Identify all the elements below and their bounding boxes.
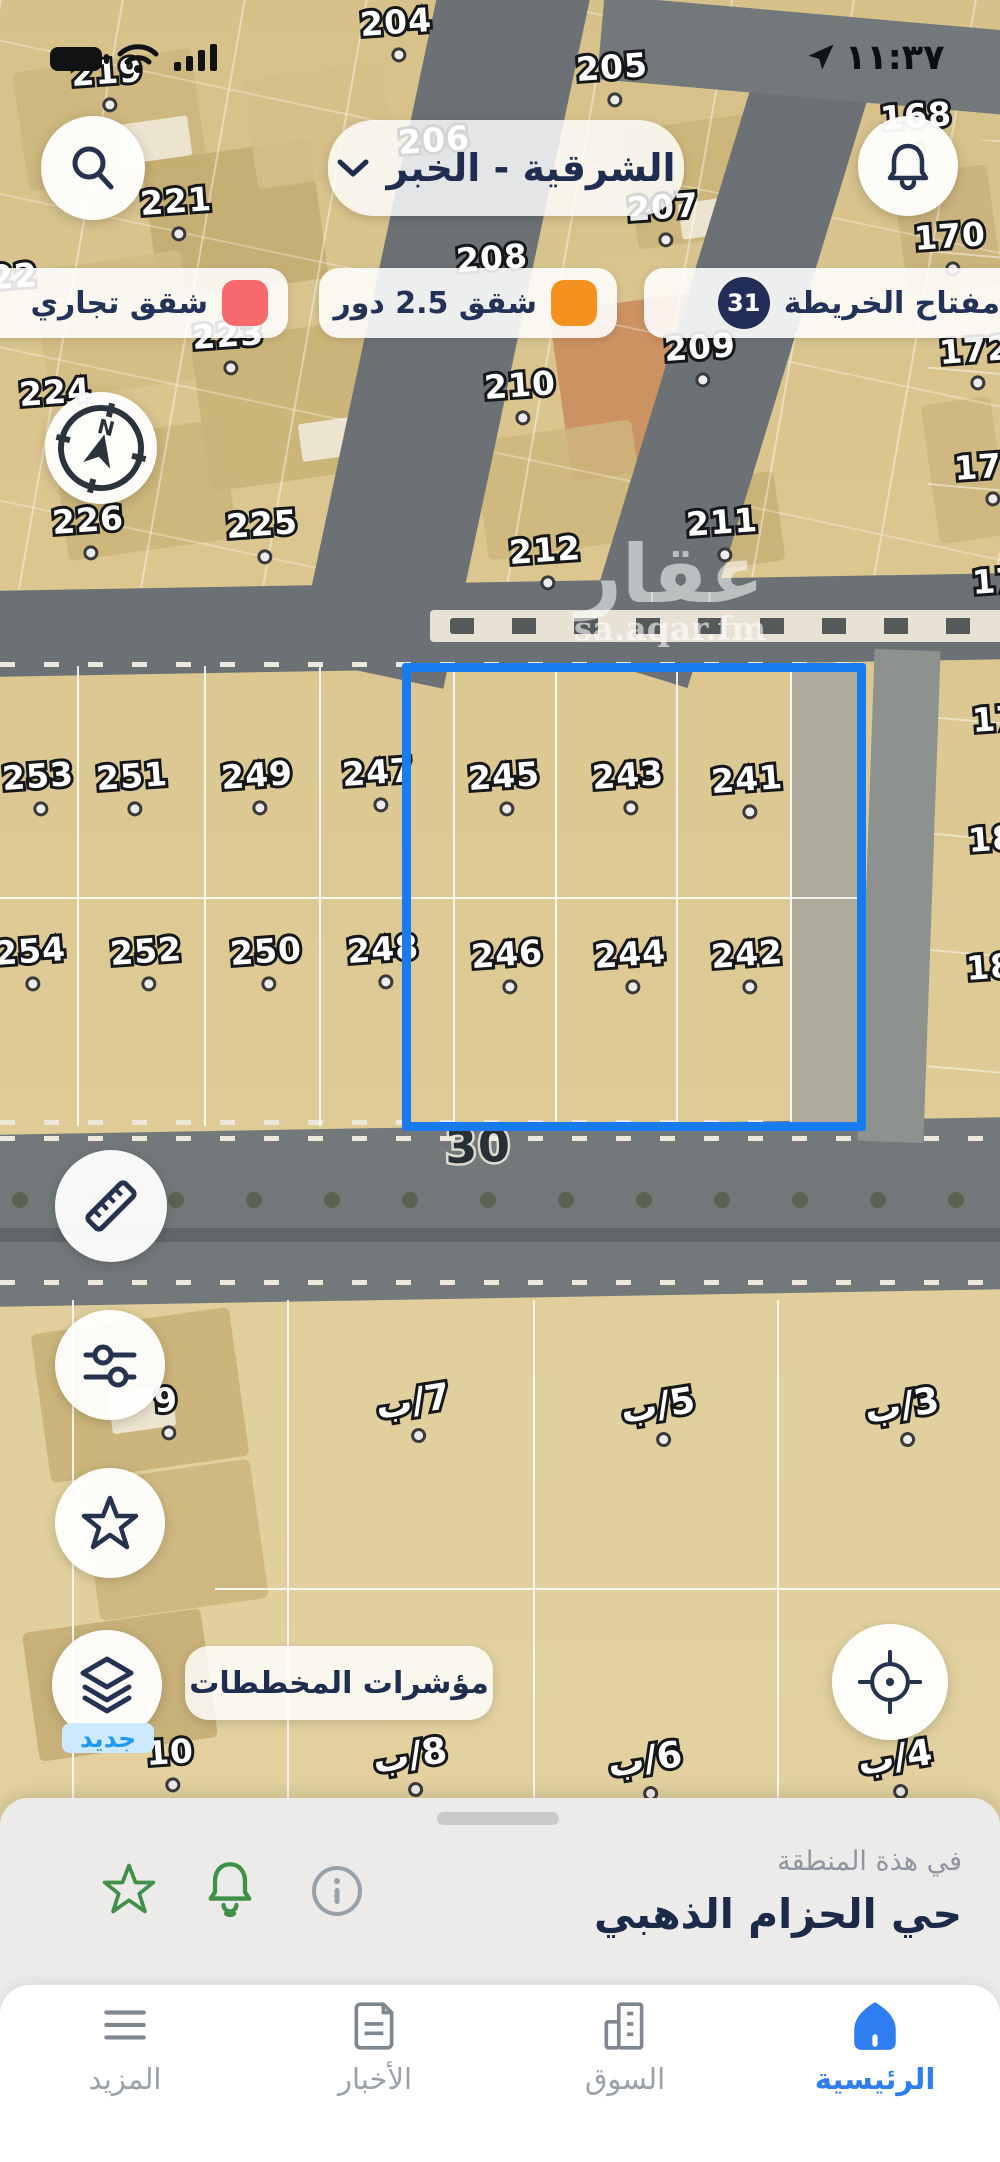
plot-label[interactable]: 5/ب [618,1380,698,1432]
plot-marker-dot [127,801,143,817]
favorite-area-button[interactable] [100,1860,158,1918]
notifications-button[interactable] [858,116,958,216]
legend-chip-floors[interactable]: شقق 2.5 دور [319,268,617,338]
plot-label[interactable]: 249 [220,753,294,797]
plot-marker-dot [161,1425,177,1441]
plot-label[interactable]: 211 [685,500,759,544]
plot-label[interactable]: 219 [70,50,144,94]
nav-item-news[interactable]: الأخبار [250,1999,500,2162]
plot-marker-dot [223,360,239,376]
plot-label[interactable]: 176 [971,558,1000,602]
news-icon [348,1999,402,2053]
plot-label[interactable]: 6/ب [605,1734,685,1786]
search-icon [67,142,119,194]
legend-chip-commercial[interactable]: شقق تجاري [0,268,288,338]
plot-marker-dot [717,547,733,563]
plot-marker-dot [410,1427,427,1444]
legend-label-commercial: شقق تجاري [31,286,209,321]
region-selector-label: الشرقية - الخبر [386,146,675,190]
plot-marker-dot [658,232,674,248]
crosshair-icon [855,1647,925,1717]
star-icon [79,1492,141,1554]
plot-label[interactable]: 7/ب [373,1376,453,1428]
plot-marker-dot [607,92,623,108]
plot-marker-dot [171,226,187,242]
filters-button[interactable] [55,1310,165,1420]
menu-icon [98,1999,152,2053]
chevron-down-icon [336,157,370,179]
plot-marker-dot [102,97,118,113]
plot-marker-dot [407,1781,424,1798]
market-icon [598,1999,652,2053]
plot-marker-dot [985,491,1000,507]
plot-label[interactable]: 225 [225,502,299,546]
locate-me-button[interactable] [832,1624,948,1740]
legend-swatch-red [222,280,268,326]
nav-label-market: السوق [585,2062,665,2096]
plot-marker-dot [25,976,41,992]
plot-label[interactable]: 182 [965,944,1000,988]
plot-marker-dot [655,1431,672,1448]
plot-selection-rectangle [402,663,866,1131]
plot-label[interactable]: 170 [913,214,987,258]
plot-label[interactable]: 178 [971,696,1000,740]
plot-label[interactable]: 3/ب [862,1380,942,1432]
legend-swatch-orange [551,280,597,326]
plot-marker-dot [373,797,389,813]
home-icon [848,1999,902,2053]
nav-label-news: الأخبار [338,2062,412,2096]
area-title: حي الحزام الذهبي [594,1890,962,1938]
plot-marker-dot [540,575,556,591]
bell-icon [882,140,934,192]
plot-label[interactable]: 250 [229,929,303,973]
legend-map-key-label: مفتاح الخريطة [784,286,1000,321]
plot-label[interactable]: 252 [109,929,183,973]
bell-outline-icon [202,1860,258,1920]
plot-marker-dot [83,545,99,561]
plans-indicators-label: مؤشرات المخططات [189,1666,489,1701]
plot-marker-dot [261,976,277,992]
nav-label-home: الرئيسية [815,2062,936,2096]
legend-label-floors: شقق 2.5 دور [333,286,537,321]
plot-marker-dot [252,800,268,816]
plot-label[interactable]: 205 [575,45,649,89]
legend-map-key-chip[interactable]: مفتاح الخريطة 31 [644,268,1000,338]
sheet-drag-handle[interactable] [437,1812,559,1825]
plot-label[interactable]: 204 [359,0,433,44]
new-feature-badge: جديد [62,1723,154,1753]
layers-icon [75,1653,139,1717]
plot-marker-dot [33,801,49,817]
nav-label-more: المزيد [89,2062,162,2096]
plot-label[interactable]: 174 [953,444,1000,488]
plot-label[interactable]: 210 [483,363,557,407]
favorites-button[interactable] [55,1468,165,1578]
compass-button[interactable]: N [45,392,157,504]
nav-item-more[interactable]: المزيد [0,1999,250,2162]
plot-marker-dot [899,1431,916,1448]
plot-marker-dot [257,549,273,565]
plot-label[interactable]: 226 [51,498,125,542]
plot-marker-dot [515,410,531,426]
plans-indicators-button[interactable]: مؤشرات المخططات [185,1646,493,1720]
app-screen: { "status_bar": { "time": "١١:٣٧" }, "he… [0,0,1000,2162]
plot-marker-dot [391,47,407,63]
plot-marker-dot [695,372,711,388]
area-info-button[interactable] [310,1864,364,1918]
sliders-icon [78,1333,142,1397]
map-key-count-badge: 31 [718,277,770,329]
plot-label[interactable]: 251 [95,754,169,798]
ruler-icon [79,1174,143,1238]
measure-button[interactable] [55,1150,167,1262]
plot-label[interactable]: 8/ب [370,1730,450,1782]
nav-item-market[interactable]: السوق [500,1999,750,2162]
area-alerts-button[interactable] [202,1860,258,1920]
plot-label[interactable]: 254 [0,929,67,973]
plot-label[interactable]: 180 [967,816,1000,860]
region-selector[interactable]: الشرقية - الخبر [328,120,684,216]
star-outline-icon [100,1860,158,1918]
search-button[interactable] [41,116,145,220]
nav-item-home[interactable]: الرئيسية [750,1999,1000,2162]
plot-label[interactable]: 221 [139,179,213,223]
plot-label[interactable]: 253 [1,754,75,798]
area-caption: في هذة المنطقة [777,1846,962,1877]
plot-marker-dot [141,976,157,992]
info-icon [310,1864,364,1918]
plot-marker-dot [378,974,394,990]
plot-label[interactable]: 212 [508,528,582,572]
plot-marker-dot [165,1777,181,1793]
plot-marker-dot [970,375,986,391]
bottom-navigation: الرئيسية السوق الأخبار المزيد [0,1985,1000,2162]
